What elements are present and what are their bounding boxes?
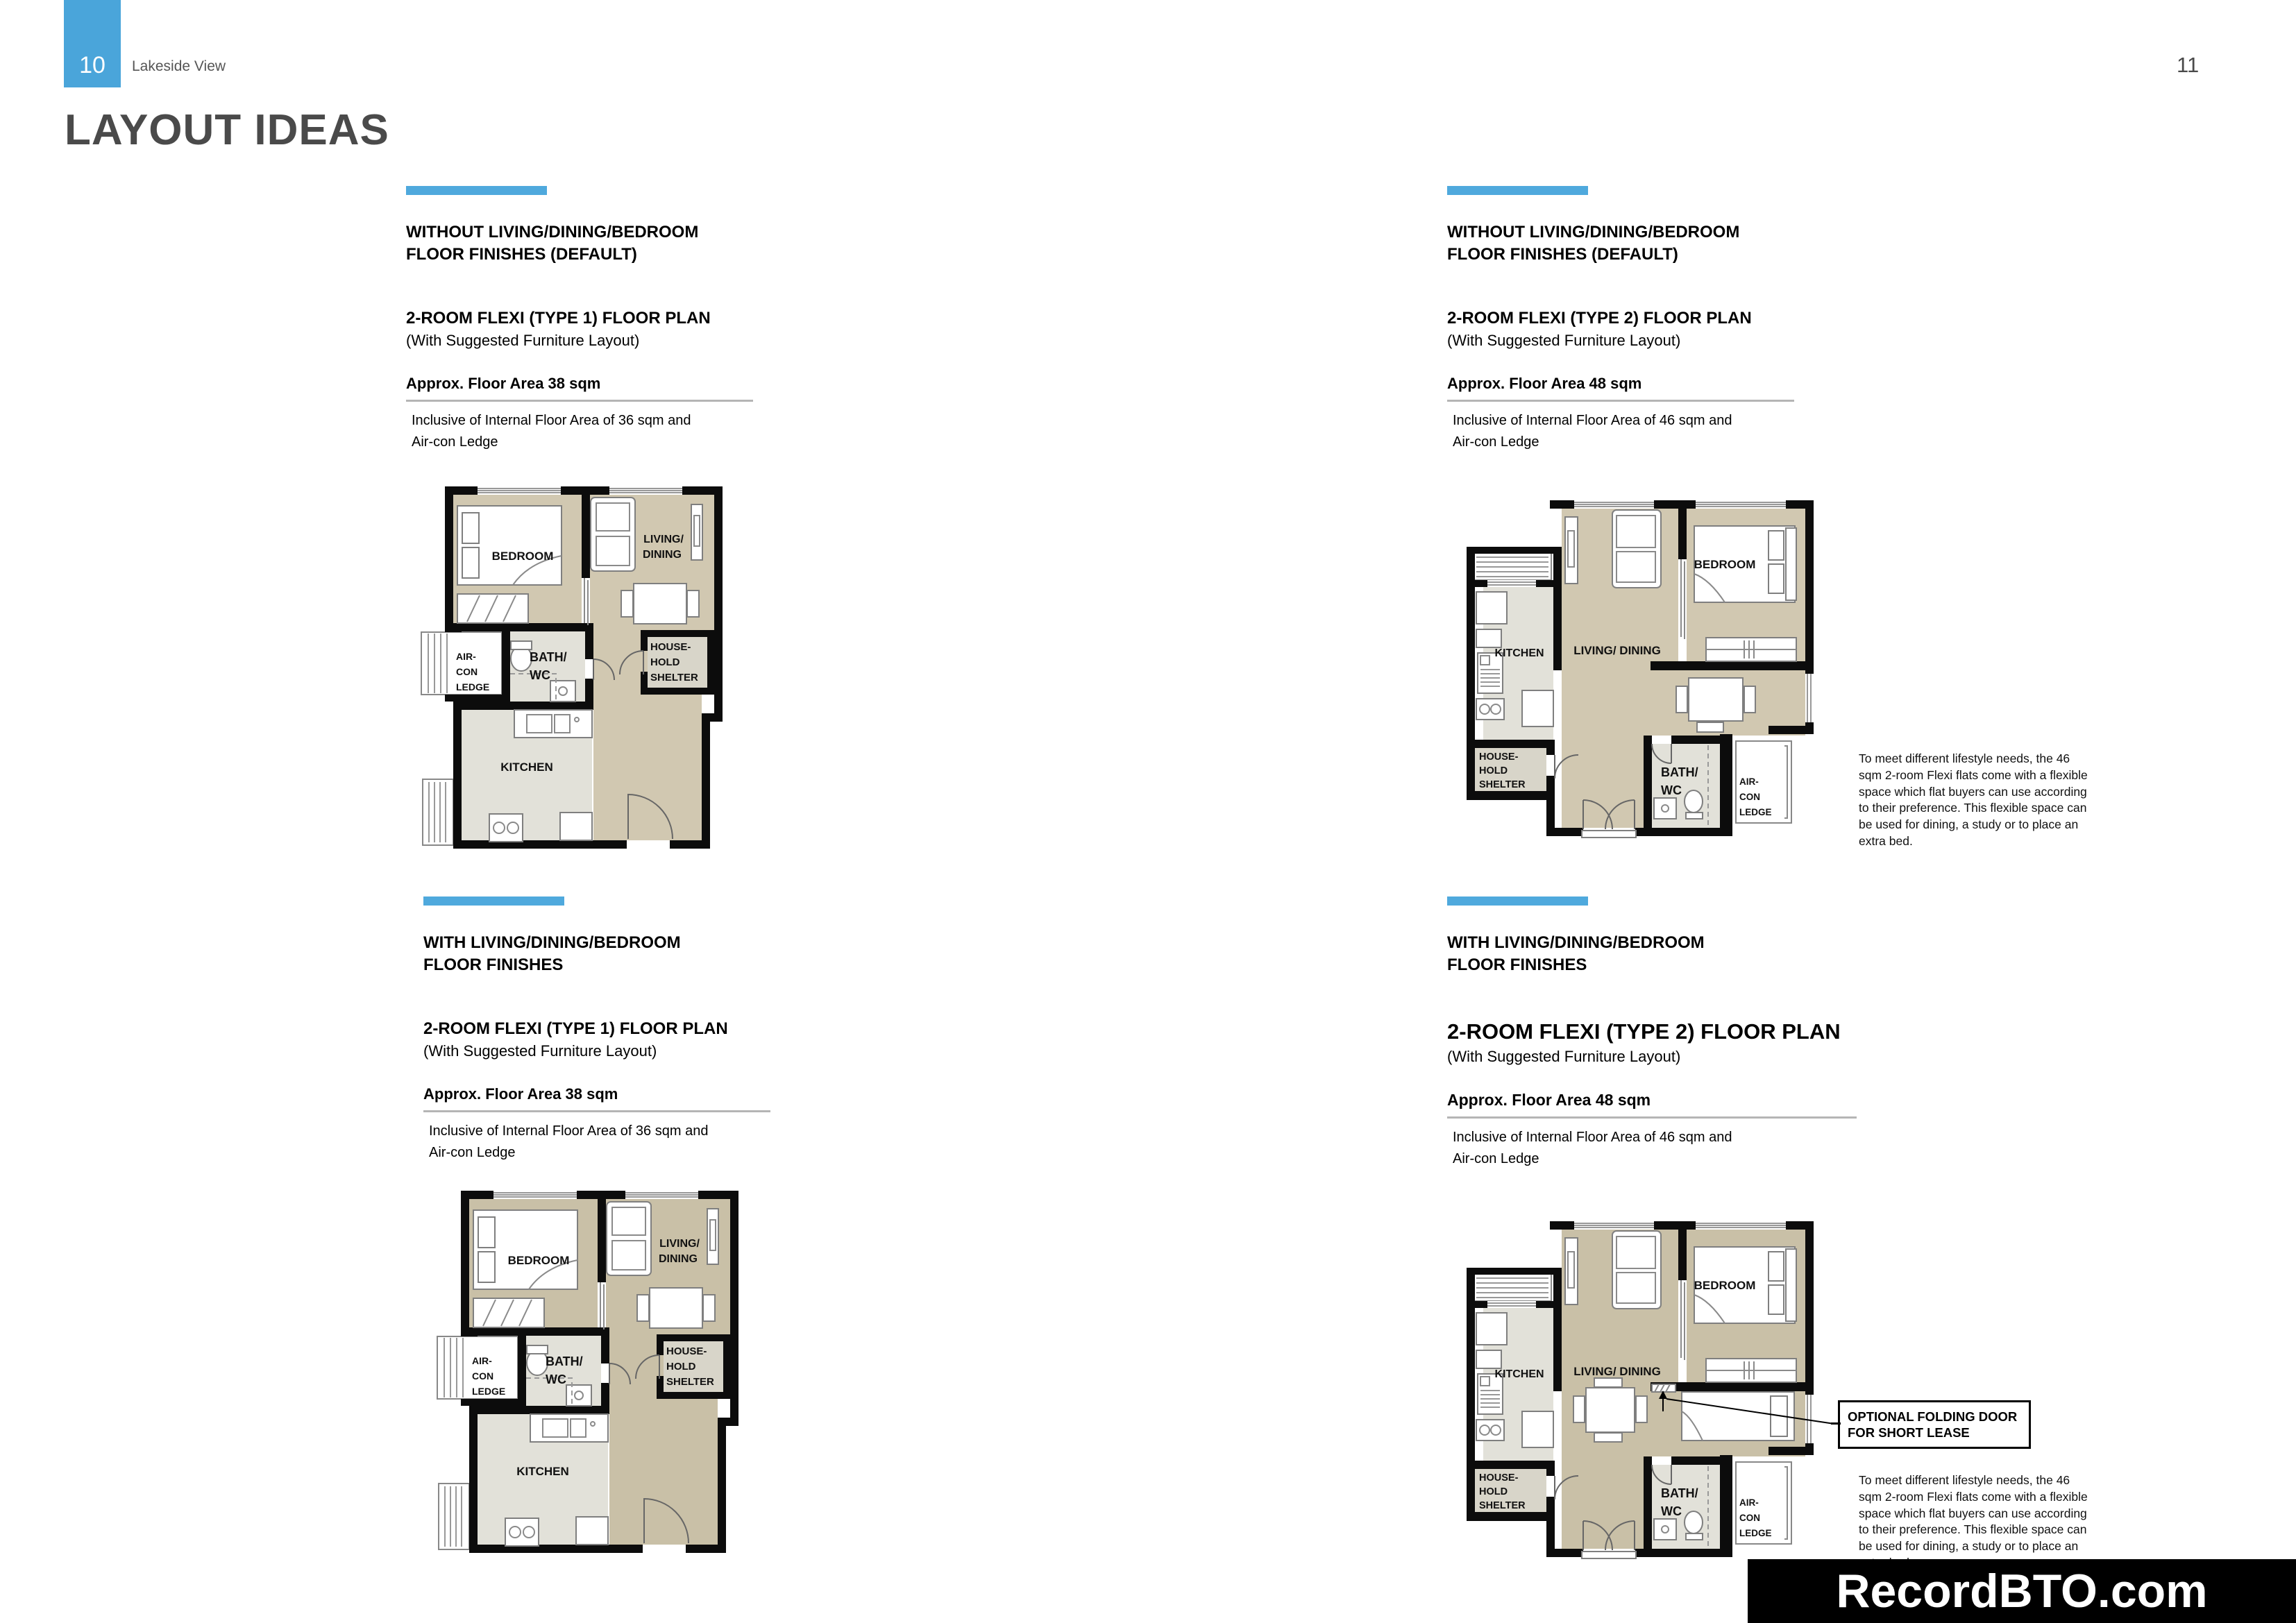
room-label-bath-line1: BATH/	[546, 1354, 583, 1368]
finish-heading-line1: WITH LIVING/DINING/BEDROOM	[423, 932, 826, 954]
finish-heading: WITHOUT LIVING/DINING/BEDROOM FLOOR FINI…	[1447, 221, 1850, 266]
section-type1-with-finishes: WITH LIVING/DINING/BEDROOM FLOOR FINISHE…	[423, 897, 826, 1164]
optional-folding-door-callout: OPTIONAL FOLDING DOOR FOR SHORT LEASE	[1838, 1400, 2031, 1449]
room-label-aircon-line3: LEDGE	[1739, 807, 1772, 817]
room-label-shelter-line1: HOUSE-	[666, 1345, 707, 1357]
room-label-shelter-line1: HOUSE-	[1479, 1472, 1519, 1484]
room-label-bath-line1: BATH/	[530, 650, 567, 664]
room-label-bath-line1: BATH/	[1661, 765, 1698, 779]
inclusive-note: Inclusive of Internal Floor Area of 36 s…	[423, 1121, 826, 1164]
floor-plan-type2-with-finishes: KITCHEN LIVING/ DINING BEDROOM BATH/ WC …	[1453, 1209, 1834, 1601]
callout-leader-line	[1831, 1422, 1841, 1425]
room-label-bath-line2: WC	[1661, 1504, 1682, 1518]
plan-subtitle: (With Suggested Furniture Layout)	[1447, 1048, 1905, 1066]
inclusive-line2: Air-con Ledge	[1453, 1148, 1905, 1170]
plan-title: 2-ROOM FLEXI (TYPE 2) FLOOR PLAN	[1447, 309, 1850, 328]
room-label-shelter-line3: SHELTER	[1479, 779, 1526, 790]
room-label-living: LIVING/ DINING	[1573, 644, 1661, 657]
floor-plan-type1-with-finishes: BEDROOM LIVING/ DINING AIR- CON LEDGE BA…	[428, 1178, 754, 1565]
room-label-aircon-line1: AIR-	[472, 1355, 492, 1366]
room-label-aircon-line2: CON	[472, 1370, 493, 1382]
floor-area: Approx. Floor Area 48 sqm	[1447, 1091, 1857, 1119]
callout-line1: OPTIONAL FOLDING DOOR	[1848, 1409, 2021, 1425]
accent-bar	[423, 897, 564, 906]
room-label-shelter-line1: HOUSE-	[1479, 751, 1519, 763]
page-number-left-box: 10	[64, 0, 121, 87]
inclusive-line1: Inclusive of Internal Floor Area of 36 s…	[412, 410, 809, 432]
room-label-aircon-line1: AIR-	[1739, 776, 1759, 787]
room-label-bath-line2: WC	[1661, 783, 1682, 797]
room-label-kitchen: KITCHEN	[1494, 1368, 1544, 1380]
finish-heading-line1: WITH LIVING/DINING/BEDROOM	[1447, 932, 1905, 954]
callout-line2: FOR SHORT LEASE	[1848, 1425, 2021, 1441]
room-label-aircon-line1: AIR-	[1739, 1497, 1759, 1508]
finish-heading-line1: WITHOUT LIVING/DINING/BEDROOM	[406, 221, 809, 244]
room-label-kitchen: KITCHEN	[500, 760, 553, 774]
room-label-aircon-line2: CON	[456, 666, 478, 677]
room-label-bath-line1: BATH/	[1661, 1486, 1698, 1500]
finish-heading-line2: FLOOR FINISHES	[423, 954, 826, 976]
room-label-aircon-line3: LEDGE	[472, 1386, 505, 1397]
inclusive-note: Inclusive of Internal Floor Area of 46 s…	[1447, 410, 1850, 453]
finish-heading: WITH LIVING/DINING/BEDROOM FLOOR FINISHE…	[423, 932, 826, 976]
brand-name: Lakeside View	[132, 58, 226, 75]
floor-plan-type2-without-finishes: KITCHEN LIVING/ DINING BEDROOM BATH/ WC …	[1453, 488, 1834, 880]
plan-title: 2-ROOM FLEXI (TYPE 1) FLOOR PLAN	[406, 309, 809, 328]
section-type1-without-finishes: WITHOUT LIVING/DINING/BEDROOM FLOOR FINI…	[406, 186, 809, 453]
inclusive-line1: Inclusive of Internal Floor Area of 36 s…	[429, 1121, 826, 1142]
room-label-bath-line2: WC	[530, 668, 550, 682]
room-label-aircon-line3: LEDGE	[456, 681, 489, 692]
inclusive-line1: Inclusive of Internal Floor Area of 46 s…	[1453, 410, 1850, 432]
floor-area: Approx. Floor Area 48 sqm	[1447, 375, 1794, 402]
room-label-living-line2: DINING	[643, 549, 682, 561]
watermark-bar: RecordBTO.com	[1748, 1559, 2296, 1623]
room-label-shelter-line3: SHELTER	[666, 1376, 714, 1388]
inclusive-line2: Air-con Ledge	[1453, 432, 1850, 453]
room-label-bedroom: BEDROOM	[1694, 558, 1756, 571]
plan-title: 2-ROOM FLEXI (TYPE 2) FLOOR PLAN	[1447, 1019, 1905, 1044]
brochure-page: 10 Lakeside View 11 LAYOUT IDEAS WITHOUT…	[0, 0, 2296, 1623]
room-label-bedroom: BEDROOM	[508, 1254, 570, 1267]
inclusive-line2: Air-con Ledge	[429, 1142, 826, 1164]
inclusive-line2: Air-con Ledge	[412, 432, 809, 453]
section-type2-without-finishes: WITHOUT LIVING/DINING/BEDROOM FLOOR FINI…	[1447, 186, 1850, 453]
finish-heading: WITHOUT LIVING/DINING/BEDROOM FLOOR FINI…	[406, 221, 809, 266]
room-label-shelter-line2: HOLD	[666, 1361, 696, 1373]
floor-plan-type1-without-finishes: BEDROOM LIVING/ DINING AIR- CON LEDGE BA…	[412, 474, 738, 861]
plan-subtitle: (With Suggested Furniture Layout)	[406, 332, 809, 350]
room-label-bath-line2: WC	[546, 1373, 566, 1386]
page-title: LAYOUT IDEAS	[65, 105, 389, 155]
inclusive-note: Inclusive of Internal Floor Area of 46 s…	[1447, 1127, 1905, 1170]
accent-bar	[406, 186, 547, 195]
plan-subtitle: (With Suggested Furniture Layout)	[1447, 332, 1850, 350]
inclusive-note: Inclusive of Internal Floor Area of 36 s…	[406, 410, 809, 453]
finish-heading-line2: FLOOR FINISHES (DEFAULT)	[406, 244, 809, 266]
room-label-shelter-line2: HOLD	[1479, 1486, 1508, 1497]
floor-area: Approx. Floor Area 38 sqm	[406, 375, 753, 402]
room-label-living-line1: LIVING/	[659, 1238, 700, 1250]
room-label-living-line2: DINING	[659, 1253, 698, 1265]
room-label-shelter-line2: HOLD	[650, 656, 680, 668]
page-number-left: 10	[79, 52, 105, 79]
room-label-bedroom: BEDROOM	[492, 550, 554, 563]
room-label-bedroom: BEDROOM	[1694, 1279, 1756, 1292]
accent-bar	[1447, 186, 1588, 195]
room-label-shelter-line2: HOLD	[1479, 765, 1508, 776]
finish-heading-line2: FLOOR FINISHES (DEFAULT)	[1447, 244, 1850, 266]
room-label-aircon-line2: CON	[1739, 1513, 1760, 1523]
finish-heading: WITH LIVING/DINING/BEDROOM FLOOR FINISHE…	[1447, 932, 1905, 976]
plan-title: 2-ROOM FLEXI (TYPE 1) FLOOR PLAN	[423, 1019, 826, 1039]
floor-area: Approx. Floor Area 38 sqm	[423, 1085, 770, 1112]
room-label-aircon-line2: CON	[1739, 792, 1760, 802]
room-label-kitchen: KITCHEN	[516, 1465, 569, 1478]
plan-subtitle: (With Suggested Furniture Layout)	[423, 1042, 826, 1060]
flexi-space-note-bottom: To meet different lifestyle needs, the 4…	[1859, 1472, 2095, 1572]
page-number-right: 11	[2177, 53, 2199, 78]
room-label-shelter-line1: HOUSE-	[650, 641, 691, 653]
flexi-space-note-top: To meet different lifestyle needs, the 4…	[1859, 751, 2095, 850]
room-label-shelter-line3: SHELTER	[1479, 1500, 1526, 1511]
room-label-living: LIVING/ DINING	[1573, 1365, 1661, 1378]
section-type2-with-finishes: WITH LIVING/DINING/BEDROOM FLOOR FINISHE…	[1447, 897, 1905, 1170]
finish-heading-line2: FLOOR FINISHES	[1447, 954, 1905, 976]
watermark-text: RecordBTO.com	[1836, 1564, 2207, 1618]
room-label-living-line1: LIVING/	[643, 534, 684, 545]
inclusive-line1: Inclusive of Internal Floor Area of 46 s…	[1453, 1127, 1905, 1148]
room-label-kitchen: KITCHEN	[1494, 647, 1544, 659]
room-label-shelter-line3: SHELTER	[650, 672, 698, 683]
room-label-aircon-line3: LEDGE	[1739, 1528, 1772, 1538]
accent-bar	[1447, 897, 1588, 906]
finish-heading-line1: WITHOUT LIVING/DINING/BEDROOM	[1447, 221, 1850, 244]
room-label-aircon-line1: AIR-	[456, 651, 476, 662]
